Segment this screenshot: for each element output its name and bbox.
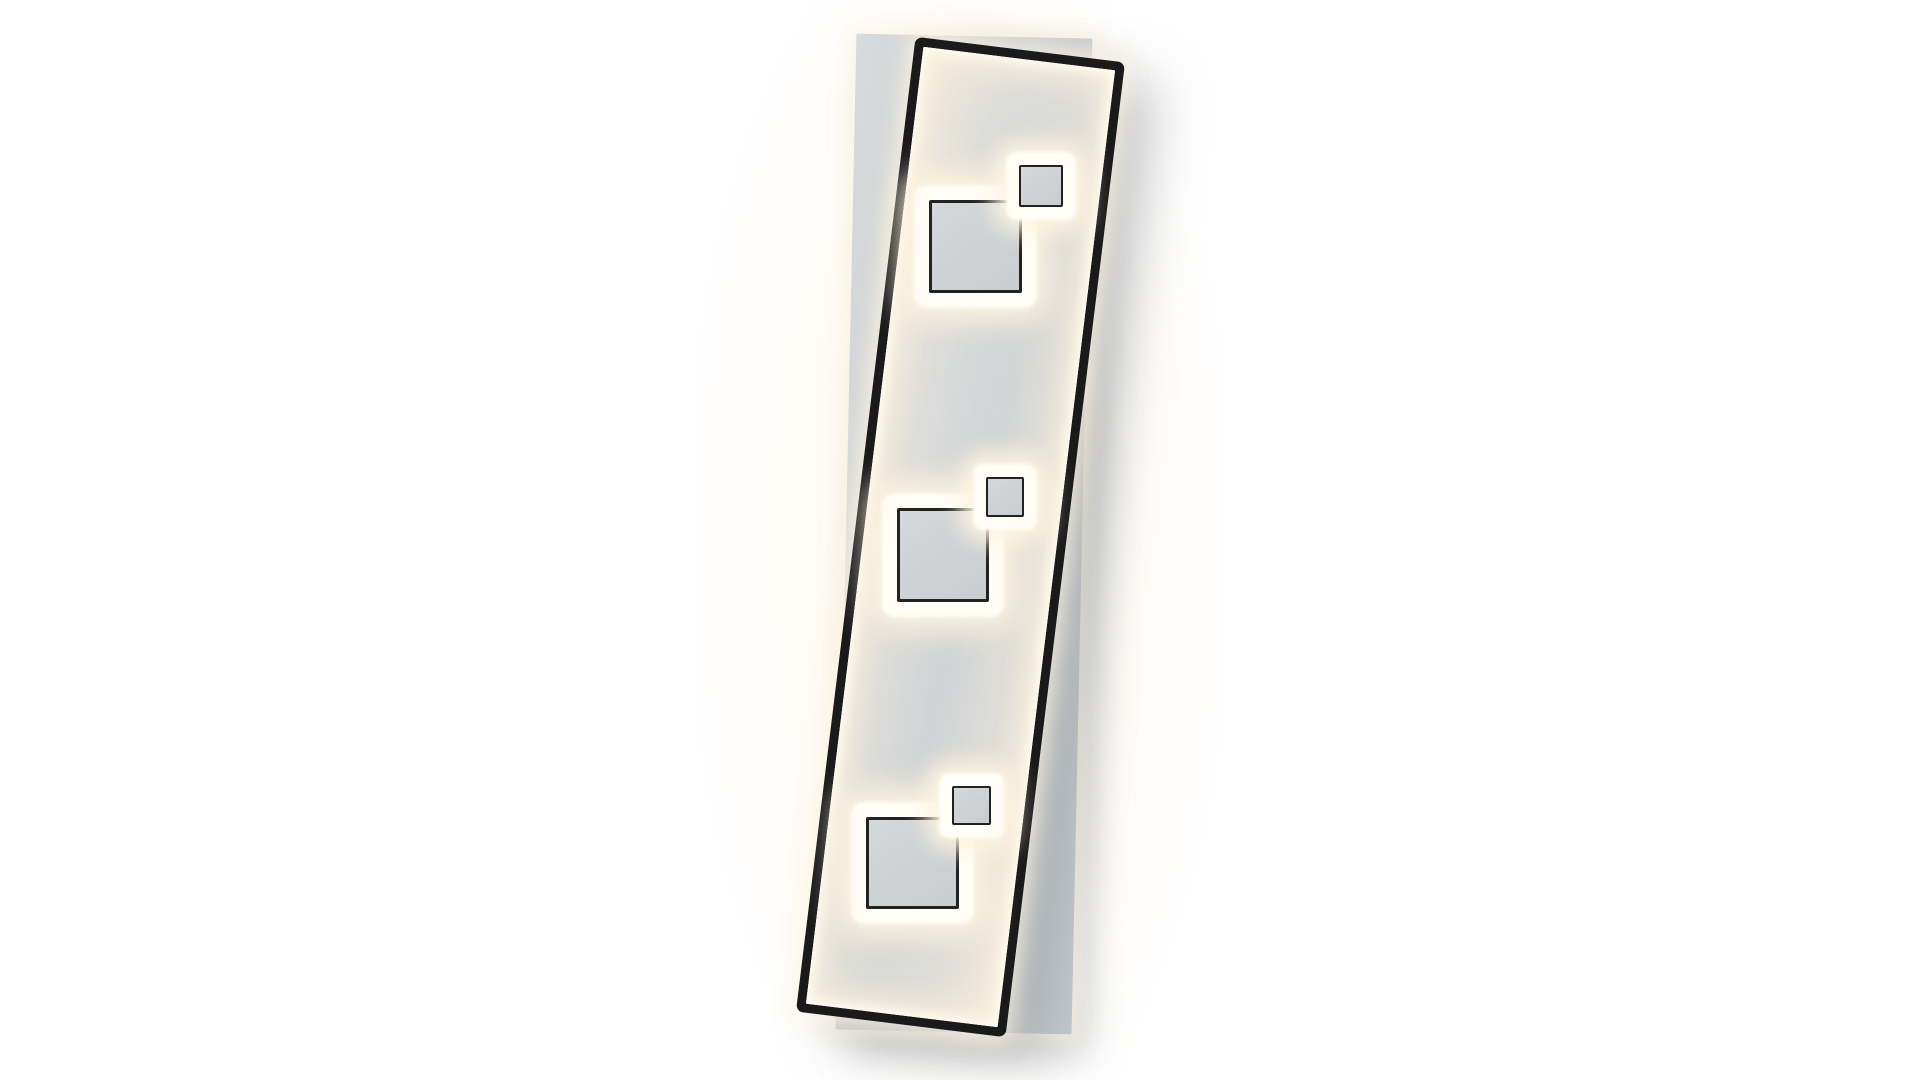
led-square-small-middle (986, 477, 1024, 517)
led-square-small-top (1019, 165, 1063, 207)
led-panel-light-product-photo (0, 0, 1920, 1080)
led-square-small-bottom (952, 786, 991, 825)
led-square-group-bottom (866, 817, 959, 909)
led-square-group-middle (897, 508, 989, 602)
led-square-group-top (929, 200, 1022, 293)
